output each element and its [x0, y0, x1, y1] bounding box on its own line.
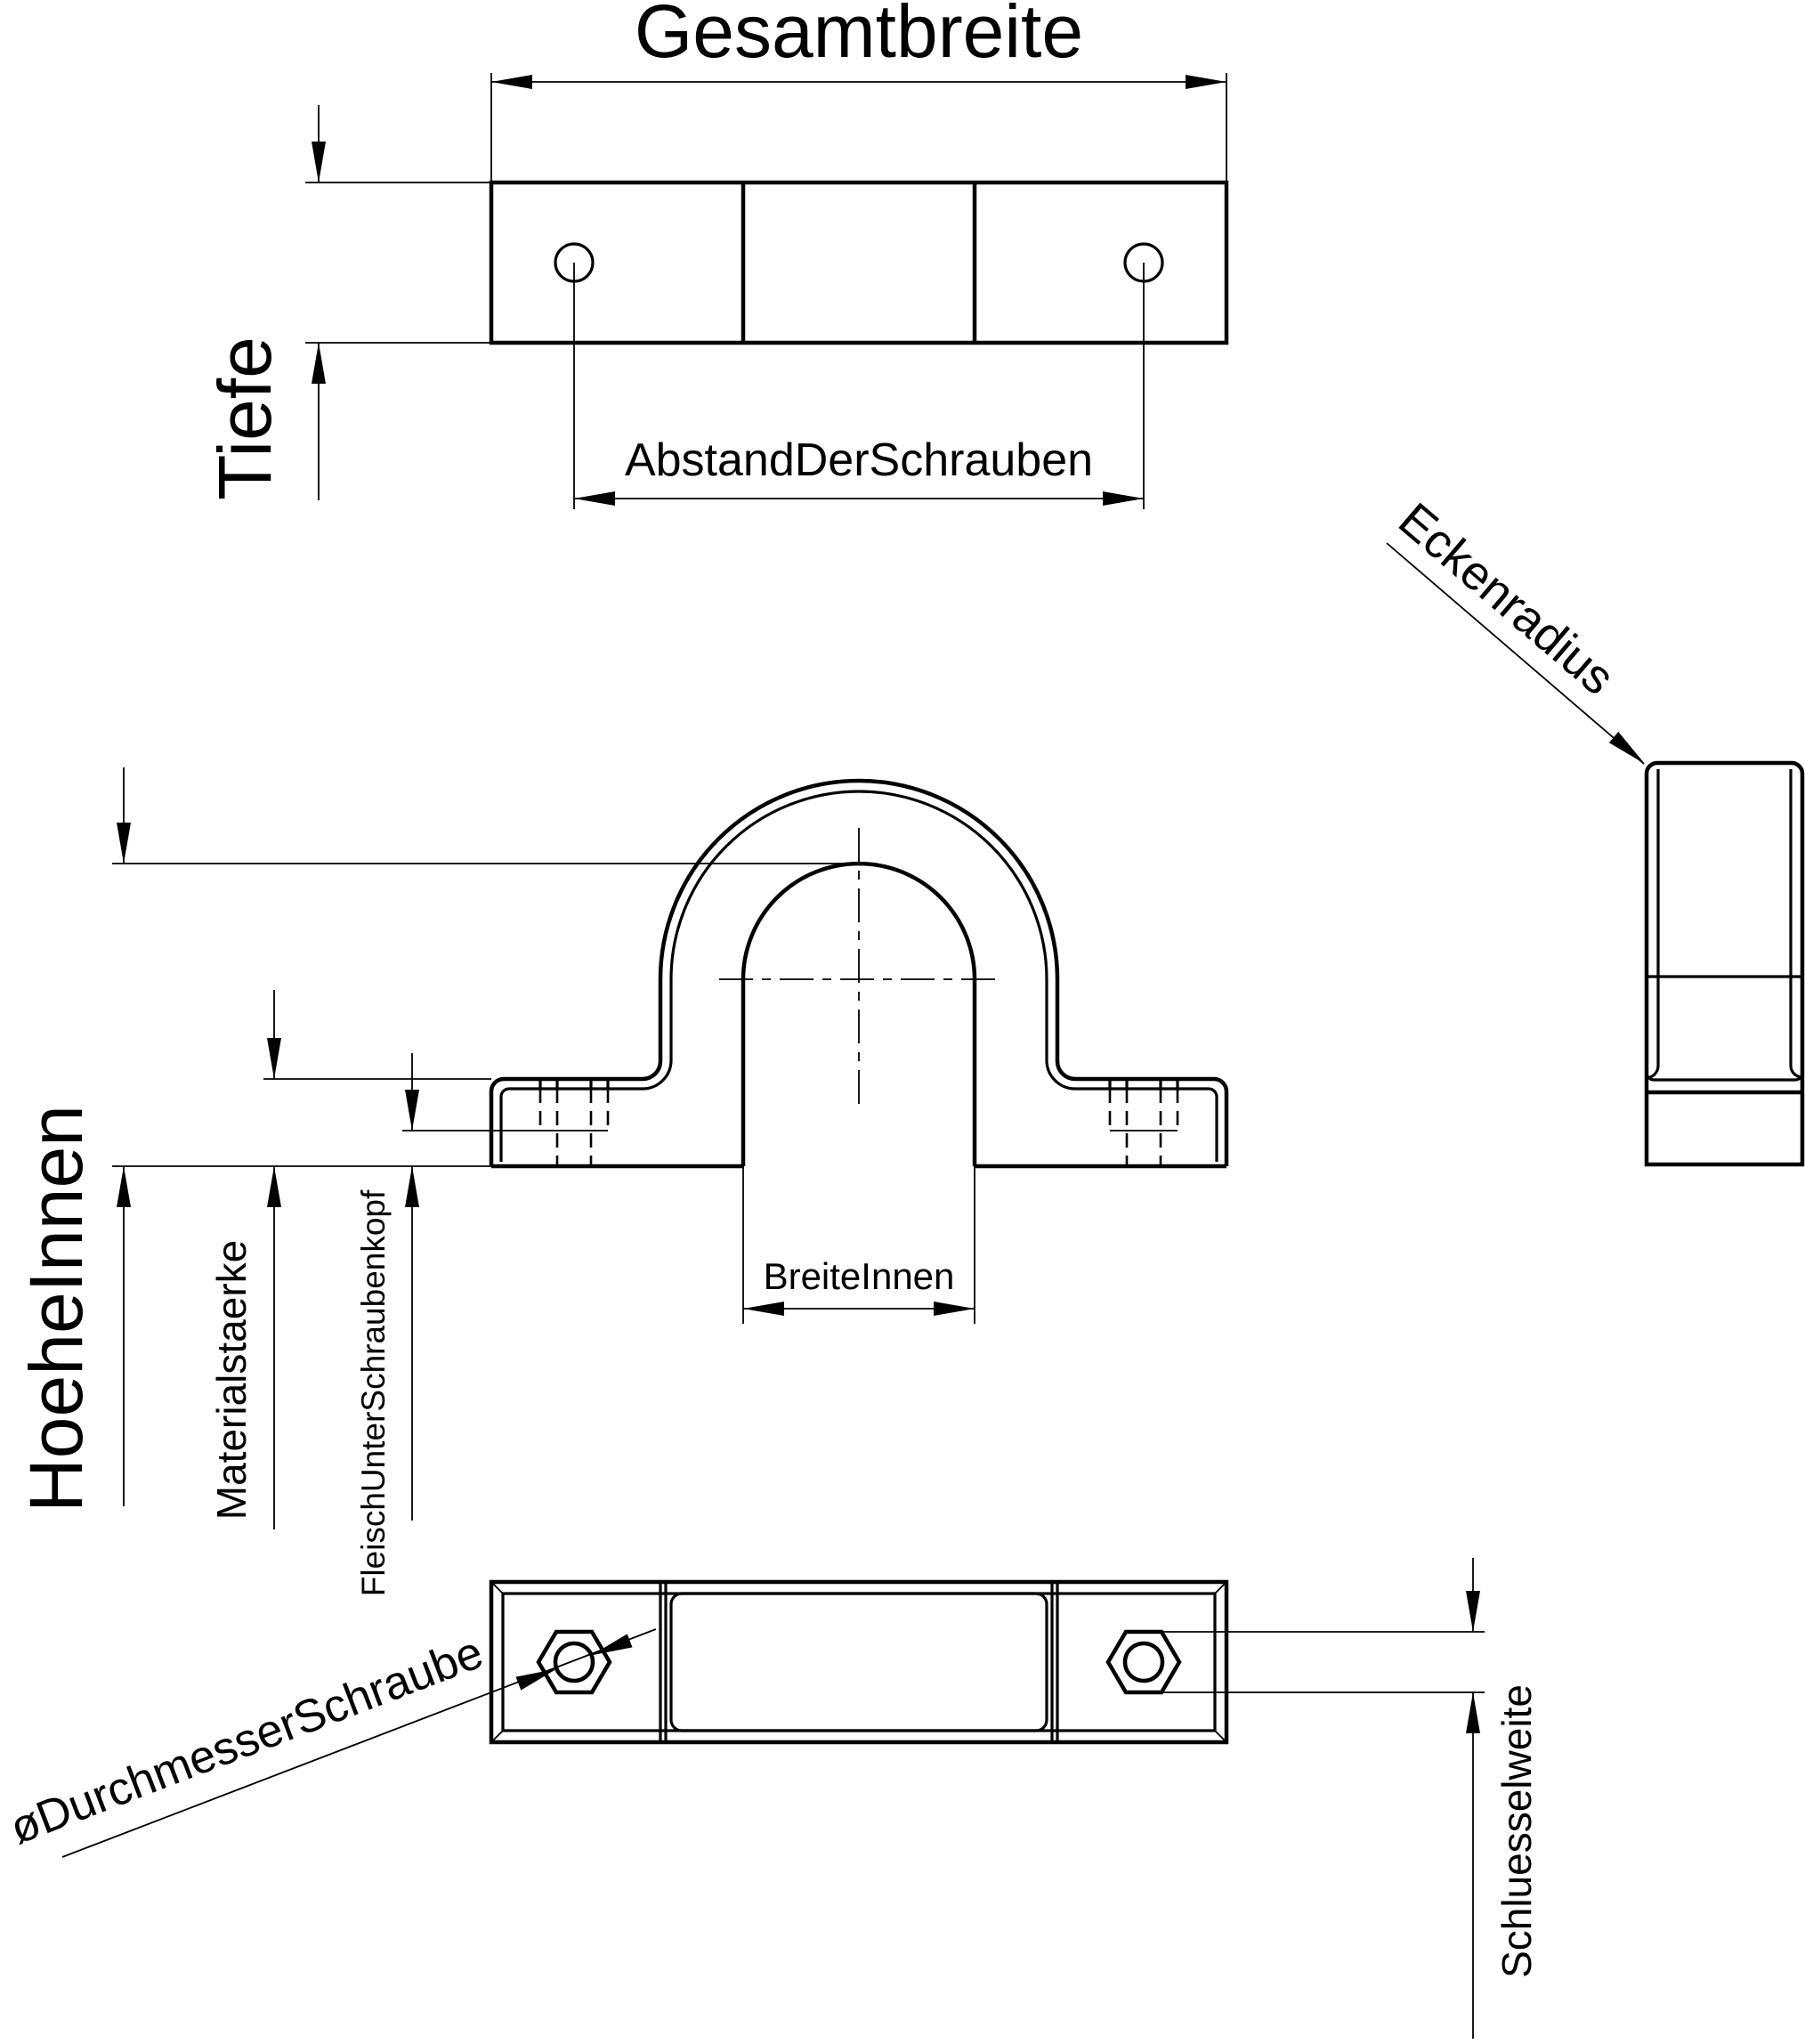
bottom-view: [491, 1582, 1226, 1742]
dimension-schluesselweite: Schluesselweite: [1162, 1558, 1540, 2039]
hex-nut-left: [538, 1632, 610, 1692]
dimension-tiefe: Tiefe: [203, 105, 495, 500]
arrowhead-top: [1466, 1591, 1480, 1632]
label-schluesselweite: Schluesselweite: [1493, 1684, 1540, 1978]
arrowhead-top: [267, 1038, 281, 1079]
bottom-view-outline: [491, 1582, 1226, 1742]
label-durchmesser-schraube: øDurchmesserSchraube: [4, 1626, 490, 1854]
arrowhead-bottom: [267, 1166, 281, 1207]
arch-footprint: [671, 1594, 1047, 1731]
left-side-edge-line: [501, 979, 671, 1162]
label-hoehe-innen: HoeheInnen: [14, 1105, 98, 1513]
right-side-outline: [1057, 979, 1226, 1166]
dimension-materialstaerke: Materialstaerke: [208, 990, 491, 1529]
arrowhead-left: [491, 75, 532, 89]
drawing-svg: Gesamtbreite Tiefe AbstandDerSchrauben: [0, 0, 1805, 2044]
hidden-hole-lines-right: [1110, 1079, 1178, 1166]
arrowhead-top: [312, 142, 326, 182]
label-abstand-der-schrauben: AbstandDerSchrauben: [625, 434, 1093, 486]
dimension-fleisch-unter-schraubenkopf: FleischUnterSchraubenkopf: [355, 1053, 608, 1596]
label-tiefe: Tiefe: [203, 337, 287, 500]
hex-outline: [538, 1632, 610, 1692]
arrowhead-bottom: [1466, 1692, 1480, 1733]
label-eckenradius: Eckenradius: [1388, 493, 1624, 706]
hex-outline: [1108, 1632, 1179, 1692]
side-view-outline: [1647, 763, 1802, 1164]
leader-eckenradius: Eckenradius: [1387, 493, 1645, 764]
arrowhead-right: [934, 1302, 975, 1316]
technical-drawing-page: Gesamtbreite Tiefe AbstandDerSchrauben: [0, 0, 1805, 2044]
hidden-hole-lines-left: [540, 1079, 608, 1166]
arrowhead-right: [1186, 75, 1226, 89]
side-view: [1646, 763, 1802, 1164]
arrowhead-bottom: [117, 1166, 131, 1207]
dimension-gesamtbreite: Gesamtbreite: [491, 0, 1226, 182]
arrowhead-bottom: [312, 343, 326, 384]
label-fleisch-unter-schraubenkopf: FleischUnterSchraubenkopf: [355, 1189, 392, 1596]
screw-circle: [1125, 1643, 1162, 1681]
front-view: [491, 781, 1226, 1166]
arrowhead-right: [1103, 491, 1144, 506]
label-breite-innen: BreiteInnen: [764, 1255, 955, 1297]
right-side-edge-line: [1047, 979, 1217, 1162]
dimension-hoehe-innen: HoeheInnen: [14, 767, 859, 1513]
dimension-breite-innen: BreiteInnen: [743, 1166, 975, 1324]
arrowhead-bottom: [405, 1166, 419, 1207]
hex-nut-right: [1108, 1632, 1179, 1692]
arrowhead-left: [574, 491, 615, 506]
arrowhead-top: [405, 1090, 419, 1131]
label-gesamtbreite: Gesamtbreite: [635, 0, 1083, 73]
left-side-outline: [491, 979, 660, 1166]
arrowhead-top: [117, 823, 131, 864]
arrowhead: [1609, 732, 1645, 764]
flange-top-line: [1647, 1073, 1802, 1080]
screw-circle: [555, 1643, 593, 1681]
label-materialstaerke: Materialstaerke: [208, 1240, 255, 1520]
arrowhead-left: [743, 1302, 784, 1316]
top-view-outline: [491, 182, 1226, 343]
dimension-abstand-der-schrauben: AbstandDerSchrauben: [574, 434, 1144, 506]
